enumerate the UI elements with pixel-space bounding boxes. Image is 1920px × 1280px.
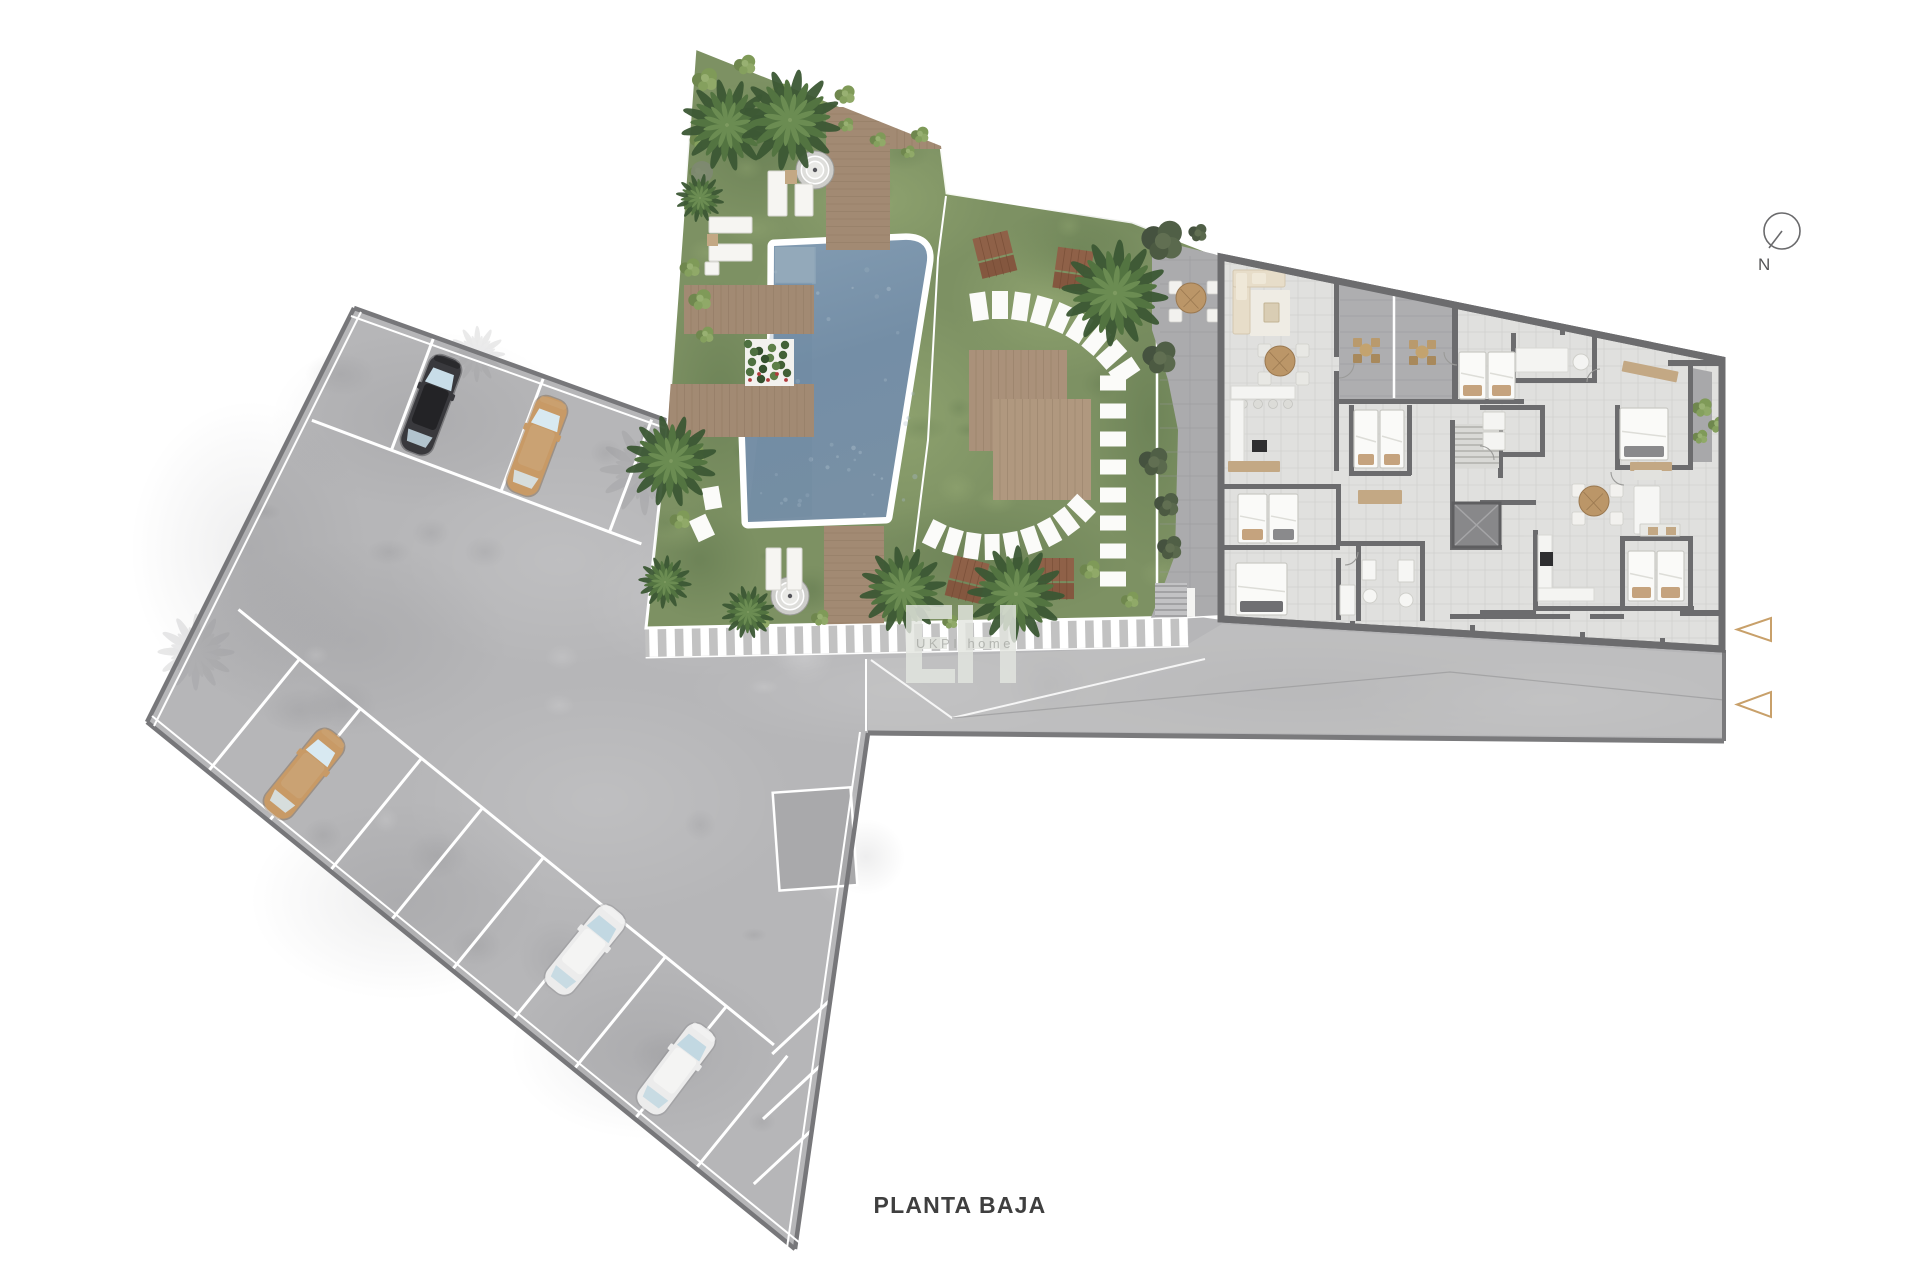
svg-text:N: N	[1758, 255, 1770, 274]
svg-text:PLANTA BAJA: PLANTA BAJA	[874, 1192, 1047, 1218]
svg-text:UKPI home: UKPI home	[916, 636, 1014, 651]
